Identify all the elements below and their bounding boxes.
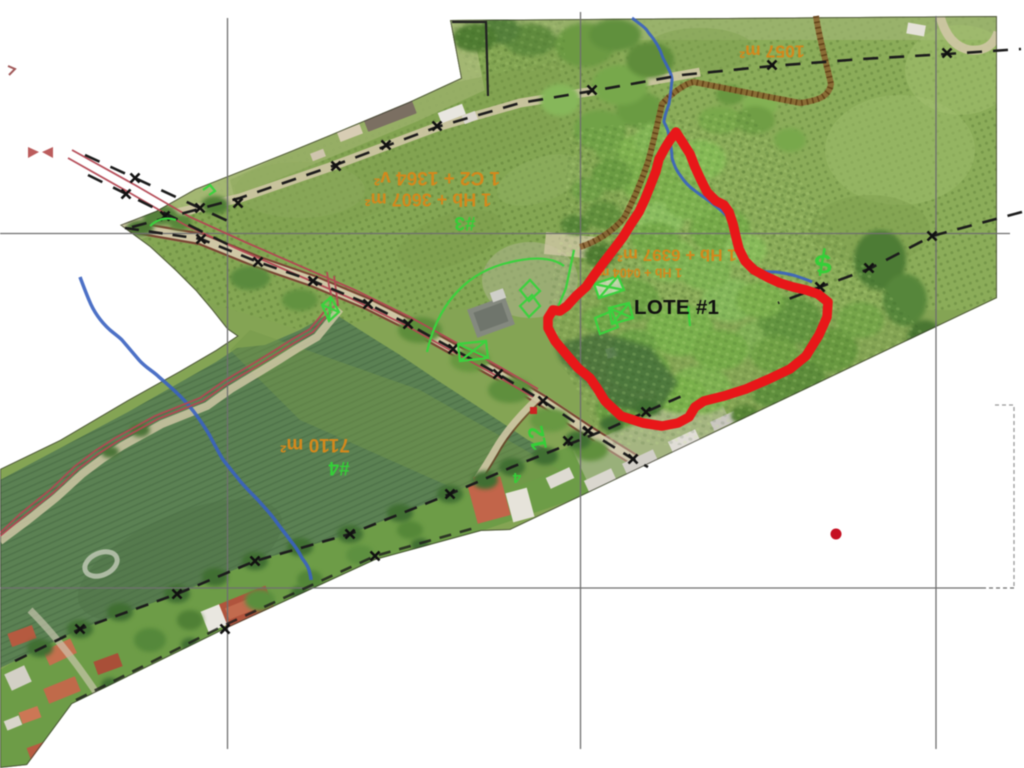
svg-text:1 Hb + 6397 m²: 1 Hb + 6397 m² [617,246,737,265]
svg-text:#4: #4 [328,457,350,478]
svg-text:12: 12 [523,424,553,453]
svg-text:1 C2 + 1364 v²: 1 C2 + 1364 v² [374,167,500,188]
svg-text:LOTE #1: LOTE #1 [634,296,719,319]
svg-text:7110 m²: 7110 m² [280,434,350,455]
svg-text:#3: #3 [454,212,475,233]
svg-text:1 Hb + 0404 m²: 1 Hb + 0404 m² [594,266,682,280]
svg-text:1057 m²: 1057 m² [739,41,804,61]
svg-text:4: 4 [512,469,521,486]
svg-text:1 Hb + 3607 m²: 1 Hb + 3607 m² [365,189,492,209]
